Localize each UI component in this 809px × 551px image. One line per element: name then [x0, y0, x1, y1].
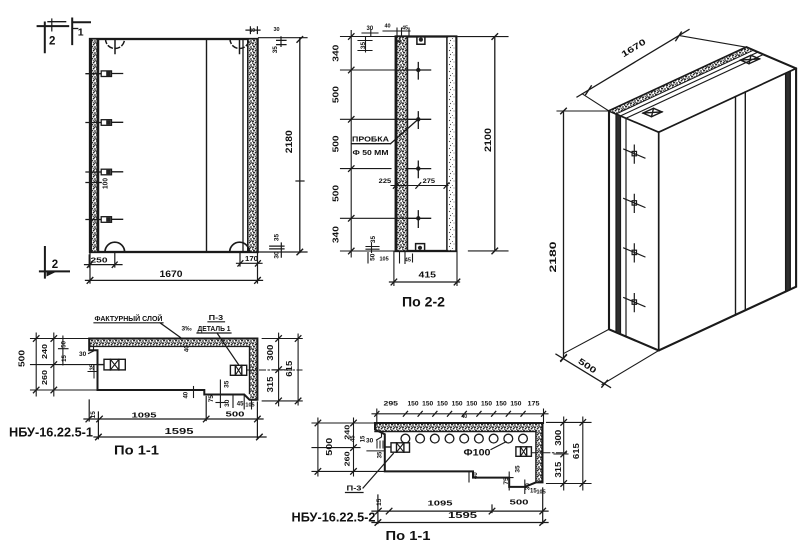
svg-text:1595: 1595	[448, 510, 477, 520]
svg-text:45: 45	[350, 435, 356, 442]
svg-text:1595: 1595	[165, 426, 194, 436]
svg-text:Ф 50 ММ: Ф 50 ММ	[353, 148, 389, 157]
svg-text:100: 100	[102, 178, 109, 189]
svg-text:По 2-2: По 2-2	[402, 295, 445, 310]
svg-text:НБУ-16.22.5-2: НБУ-16.22.5-2	[292, 511, 376, 525]
svg-text:150: 150	[510, 400, 522, 407]
svg-text:2180: 2180	[548, 242, 559, 273]
svg-text:10: 10	[250, 28, 256, 34]
svg-text:315: 315	[554, 461, 563, 478]
svg-text:150: 150	[481, 400, 493, 407]
svg-text:ПРОБКА: ПРОБКА	[352, 135, 390, 144]
svg-text:50: 50	[369, 253, 376, 261]
svg-text:30: 30	[274, 251, 281, 259]
svg-text:35: 35	[370, 236, 377, 244]
svg-text:295: 295	[384, 400, 399, 407]
svg-text:2: 2	[52, 259, 58, 271]
svg-text:40: 40	[462, 414, 468, 420]
svg-text:45: 45	[402, 26, 408, 32]
svg-text:170: 170	[245, 256, 258, 263]
svg-text:500: 500	[17, 349, 26, 367]
svg-text:50: 50	[62, 340, 68, 347]
svg-text:П-3: П-3	[209, 313, 224, 322]
svg-text:40: 40	[385, 24, 391, 30]
svg-text:105: 105	[537, 490, 546, 496]
svg-text:250: 250	[91, 256, 108, 265]
svg-text:150: 150	[408, 400, 420, 407]
svg-text:15: 15	[376, 498, 383, 506]
svg-text:2: 2	[49, 36, 55, 48]
svg-text:35: 35	[90, 363, 96, 370]
svg-text:1095: 1095	[132, 410, 157, 419]
svg-text:По 1-1: По 1-1	[386, 528, 431, 543]
svg-text:150: 150	[422, 400, 434, 407]
svg-text:30: 30	[224, 399, 231, 407]
svg-text:260: 260	[343, 451, 352, 466]
svg-text:150: 150	[437, 400, 449, 407]
svg-text:500: 500	[332, 135, 341, 153]
svg-text:НБУ-16.22.5-1: НБУ-16.22.5-1	[9, 426, 93, 440]
svg-text:35: 35	[272, 46, 279, 54]
svg-text:150: 150	[466, 400, 478, 407]
svg-text:500: 500	[332, 184, 341, 202]
svg-text:По 1-1: По 1-1	[114, 442, 159, 457]
svg-text:75: 75	[208, 395, 215, 403]
svg-text:275: 275	[423, 178, 436, 185]
svg-text:Ф100: Ф100	[464, 448, 491, 459]
svg-text:150: 150	[452, 400, 464, 407]
svg-text:1670: 1670	[160, 269, 183, 279]
svg-text:35: 35	[514, 465, 521, 473]
svg-text:35: 35	[378, 451, 384, 458]
svg-text:35: 35	[224, 380, 231, 388]
svg-text:340: 340	[332, 225, 341, 243]
svg-text:500: 500	[324, 437, 334, 455]
svg-text:3‰: 3‰	[182, 326, 193, 333]
svg-text:300: 300	[554, 429, 563, 446]
svg-text:ДЕТАЛЬ 1: ДЕТАЛЬ 1	[198, 324, 231, 333]
svg-text:315: 315	[266, 376, 275, 393]
svg-text:15: 15	[62, 355, 68, 362]
svg-text:40: 40	[473, 472, 479, 479]
svg-text:45: 45	[237, 402, 244, 408]
svg-text:615: 615	[572, 442, 581, 459]
svg-text:175: 175	[528, 400, 541, 407]
svg-text:415: 415	[419, 270, 437, 279]
svg-text:45: 45	[405, 258, 411, 264]
svg-text:35: 35	[360, 42, 367, 50]
svg-text:2100: 2100	[483, 128, 493, 152]
svg-text:500: 500	[510, 498, 529, 507]
svg-text:615: 615	[285, 360, 294, 377]
svg-text:П-3: П-3	[347, 484, 362, 493]
svg-text:30: 30	[79, 351, 87, 358]
svg-text:260: 260	[40, 370, 49, 385]
svg-text:1: 1	[78, 26, 84, 38]
svg-text:15: 15	[90, 411, 97, 419]
svg-text:500: 500	[226, 410, 245, 419]
svg-text:75: 75	[503, 477, 510, 485]
svg-text:ФАКТУРНЫЙ СЛОЙ: ФАКТУРНЫЙ СЛОЙ	[95, 314, 163, 323]
svg-text:30: 30	[367, 26, 374, 32]
svg-text:2180: 2180	[284, 130, 294, 153]
svg-text:225: 225	[379, 178, 392, 185]
svg-text:30: 30	[366, 438, 374, 445]
svg-text:105: 105	[245, 403, 254, 409]
svg-text:150: 150	[496, 400, 508, 407]
svg-text:30: 30	[274, 27, 280, 33]
svg-text:300: 300	[266, 344, 275, 361]
svg-text:105: 105	[380, 256, 389, 262]
svg-text:1095: 1095	[428, 498, 453, 507]
svg-text:340: 340	[332, 44, 341, 62]
svg-text:500: 500	[332, 85, 341, 103]
svg-text:240: 240	[40, 344, 49, 359]
svg-text:40: 40	[183, 391, 189, 398]
svg-text:35: 35	[274, 234, 281, 242]
